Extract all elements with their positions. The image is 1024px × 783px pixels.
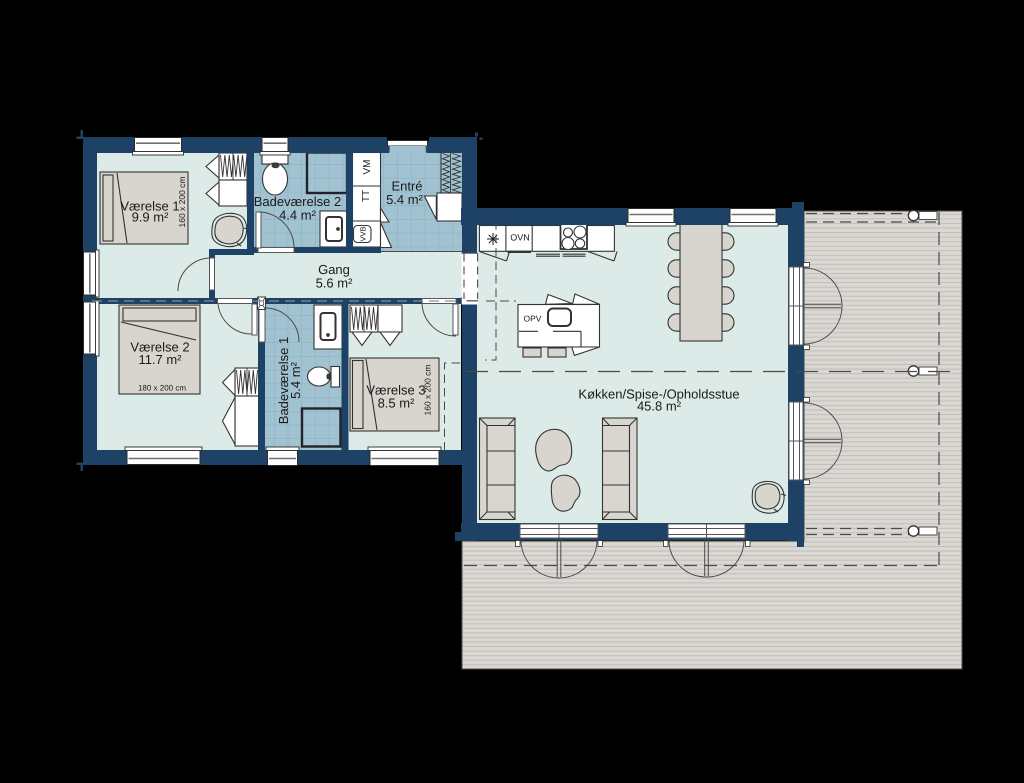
- svg-text:45.8 m²: 45.8 m²: [637, 399, 682, 414]
- svg-text:160 x 200 cm: 160 x 200 cm: [423, 364, 433, 415]
- svg-text:TT: TT: [361, 190, 372, 202]
- svg-text:11.7 m²: 11.7 m²: [138, 352, 182, 367]
- svg-text:8.5 m²: 8.5 m²: [378, 396, 416, 411]
- svg-text:VM: VM: [362, 160, 373, 175]
- svg-text:180 x 200 cm: 180 x 200 cm: [138, 384, 186, 393]
- svg-text:5.6 m²: 5.6 m²: [316, 276, 354, 291]
- svg-text:5.4 m²: 5.4 m²: [386, 192, 424, 207]
- svg-text:VVB: VVB: [359, 226, 368, 241]
- svg-text:OVN: OVN: [510, 232, 530, 242]
- svg-text:5.4 m²: 5.4 m²: [288, 361, 303, 399]
- svg-text:4.4 m²: 4.4 m²: [279, 208, 317, 223]
- svg-text:160 x 200 cm: 160 x 200 cm: [177, 176, 187, 227]
- svg-text:9.9 m²: 9.9 m²: [132, 210, 170, 225]
- svg-text:OPV: OPV: [524, 314, 542, 324]
